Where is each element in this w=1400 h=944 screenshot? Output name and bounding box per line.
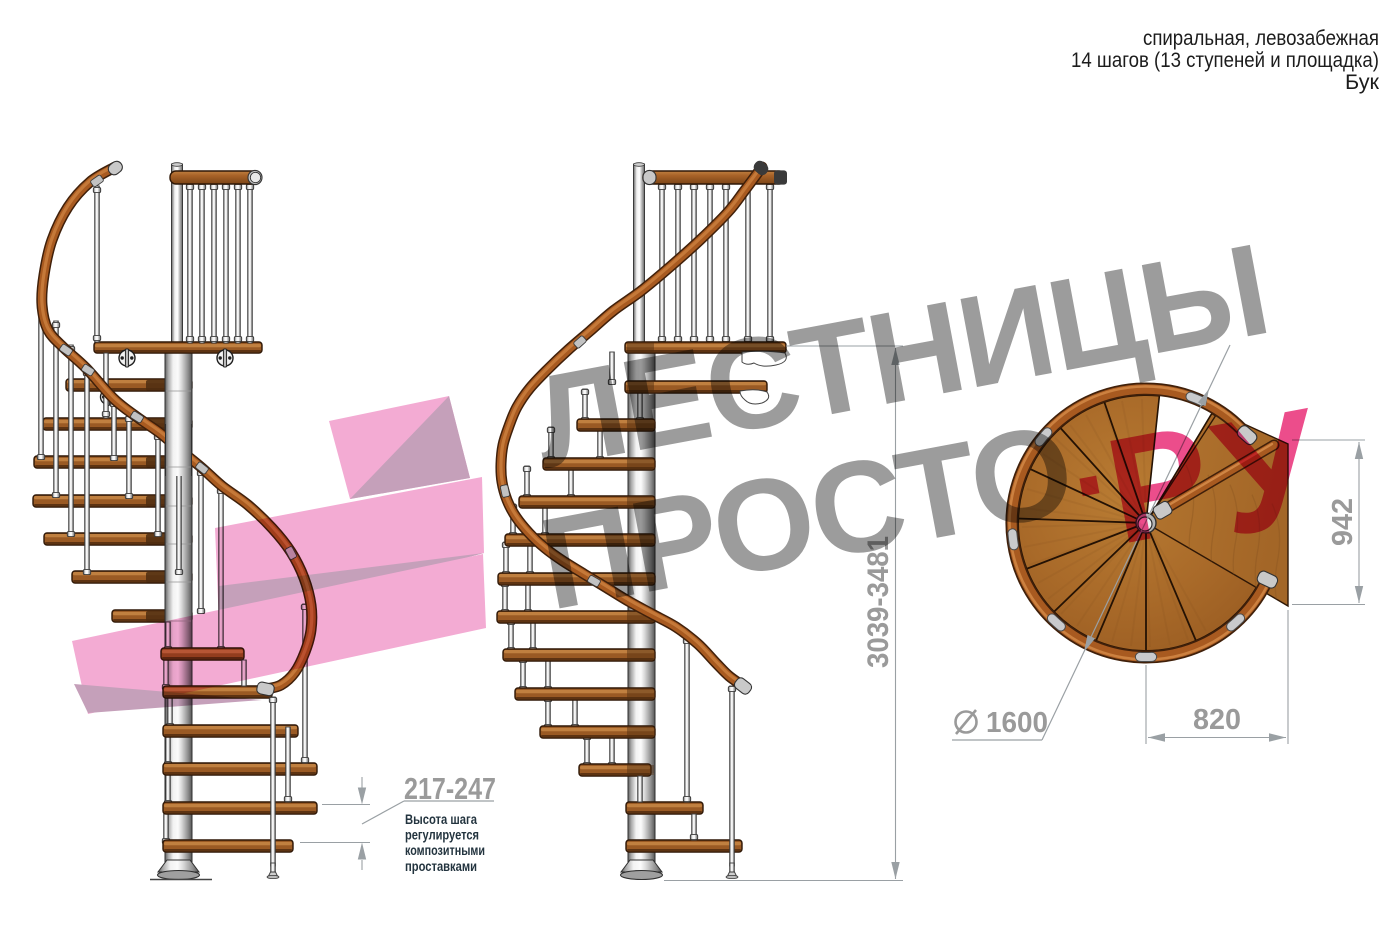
- svg-text:217-247: 217-247: [404, 771, 496, 806]
- svg-text:спиральная, левозабежная: спиральная, левозабежная: [1143, 27, 1379, 50]
- svg-text:942: 942: [1327, 498, 1359, 546]
- svg-text:Бук: Бук: [1345, 71, 1380, 94]
- svg-text:Высота шагарегулируетсякомпози: Высота шагарегулируетсякомпозитнымипрост…: [405, 811, 485, 874]
- svg-text:820: 820: [1193, 704, 1241, 736]
- svg-text:14 шагов (13 ступеней и площад: 14 шагов (13 ступеней и площадка): [1071, 49, 1379, 72]
- svg-text:1600: 1600: [986, 707, 1048, 739]
